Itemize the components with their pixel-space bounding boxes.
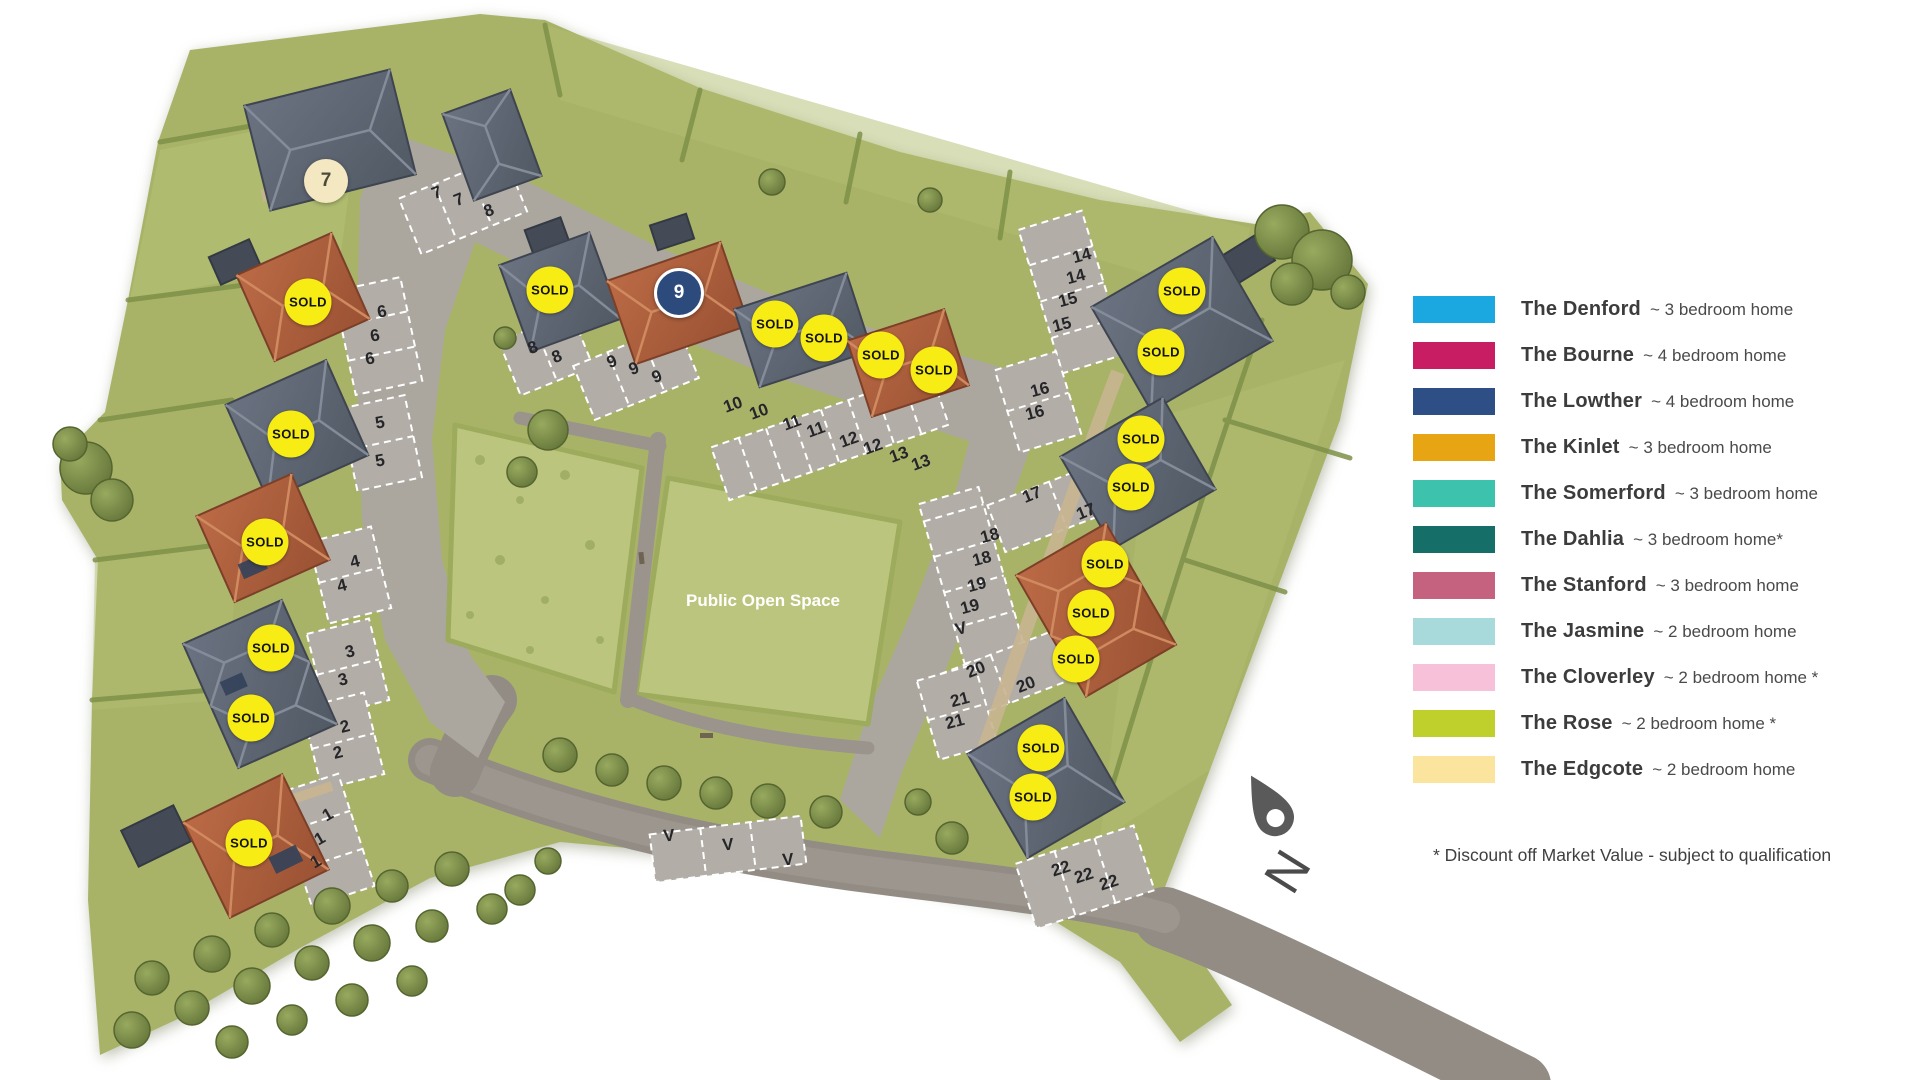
plot-bay-number: 20 [1013,672,1038,698]
plot-bay-number: 22 [1072,864,1096,889]
plot-bay-number: 4 [348,551,362,573]
sold-badge[interactable]: SOLD [1082,541,1129,588]
plot-bay-number: 10 [721,392,746,417]
plot-bay-number: 13 [887,442,912,467]
plot-bay-number: 22 [1097,871,1121,896]
plot-bay-number: V [662,826,675,847]
plot-bay-number: 21 [943,710,966,734]
legend: The Denford~ 3 bedroom homeThe Bourne~ 4… [1413,296,1818,802]
legend-house-desc: ~ 3 bedroom home [1656,576,1799,595]
plot-bay-number: 15 [1056,288,1079,312]
sold-badge[interactable]: SOLD [1108,464,1155,511]
sold-badge[interactable]: SOLD [228,695,275,742]
plot-bay-number: 17 [1019,482,1044,508]
legend-house-name: The Bourne [1521,344,1634,366]
sold-badge[interactable]: SOLD [1018,725,1065,772]
sold-badge[interactable]: SOLD [242,519,289,566]
legend-house-desc: ~ 3 bedroom home [1675,484,1818,503]
legend-house-name: The Kinlet [1521,436,1620,458]
legend-swatch [1413,434,1495,461]
plot-bay-number: V [721,835,734,856]
plot-bay-number: 1 [311,828,329,850]
plot-bay-number: 20 [963,657,988,683]
plot-marker-7[interactable]: 7 [304,159,348,203]
plot-bay-number: 10 [747,399,772,424]
plot-bay-number: 21 [948,688,971,712]
plot-bay-number: 1 [319,804,337,826]
plot-bay-number: 8 [549,346,565,368]
legend-house-desc: ~ 2 bedroom home [1653,622,1796,641]
plot-bay-number: 2 [331,742,345,764]
sold-badge[interactable]: SOLD [268,411,315,458]
public-open-space-label: Public Open Space [678,590,848,612]
plot-bay-number: 3 [336,669,350,691]
legend-house-desc: ~ 3 bedroom home [1650,300,1793,319]
plot-bay-number: 7 [429,182,445,204]
legend-house-name: The Rose [1521,712,1613,734]
plot-bay-number: 3 [343,641,357,663]
legend-row: The Bourne~ 4 bedroom home [1413,342,1818,369]
sold-badge[interactable]: SOLD [527,267,574,314]
sold-badge[interactable]: SOLD [1138,329,1185,376]
legend-swatch [1413,618,1495,645]
site-plan-page: Public Open Space N SOLDSOLDSOLDSOLDSOLD… [0,0,1920,1080]
sold-badge[interactable]: SOLD [1118,416,1165,463]
legend-row: The Kinlet~ 3 bedroom home [1413,434,1818,461]
sold-badge[interactable]: SOLD [911,347,958,394]
sold-badge[interactable]: SOLD [1068,590,1115,637]
legend-house-name: The Jasmine [1521,620,1644,642]
legend-row: The Somerford~ 3 bedroom home [1413,480,1818,507]
legend-swatch [1413,388,1495,415]
plot-bay-number: 4 [335,575,349,597]
legend-row: The Edgcote~ 2 bedroom home [1413,756,1818,783]
plot-bay-number: 9 [604,351,620,373]
legend-house-name: The Somerford [1521,482,1666,504]
plot-bay-number: 1 [307,851,325,873]
legend-row: The Stanford~ 3 bedroom home [1413,572,1818,599]
plot-bay-number: 6 [376,301,389,322]
sold-badge[interactable]: SOLD [248,625,295,672]
legend-house-desc: ~ 2 bedroom home * [1664,668,1819,687]
legend-house-name: The Lowther [1521,390,1642,412]
legend-row: The Jasmine~ 2 bedroom home [1413,618,1818,645]
plot-bay-number: 17 [1073,499,1098,525]
plot-bay-number: 16 [1028,378,1051,402]
legend-swatch [1413,342,1495,369]
legend-house-name: The Stanford [1521,574,1647,596]
sold-badge[interactable]: SOLD [1010,774,1057,821]
legend-house-desc: ~ 4 bedroom home [1651,392,1794,411]
sold-badge[interactable]: SOLD [1053,636,1100,683]
plot-bay-number: 12 [837,427,862,452]
sold-badge[interactable]: SOLD [1159,268,1206,315]
legend-swatch [1413,710,1495,737]
legend-house-desc: ~ 4 bedroom home [1643,346,1786,365]
legend-swatch [1413,480,1495,507]
plot-bay-number: 7 [451,189,467,211]
plot-bay-number: 8 [525,337,541,359]
legend-row: The Denford~ 3 bedroom home [1413,296,1818,323]
plot-bay-number: 18 [978,524,1001,548]
plot-bay-number: 9 [649,366,665,388]
plot-bay-number: 5 [374,450,387,471]
legend-house-name: The Dahlia [1521,528,1624,550]
legend-swatch [1413,664,1495,691]
legend-swatch [1413,756,1495,783]
plot-bay-number: 2 [338,716,352,738]
legend-house-name: The Cloverley [1521,666,1655,688]
legend-swatch [1413,572,1495,599]
sold-badge[interactable]: SOLD [226,820,273,867]
legend-house-name: The Denford [1521,298,1641,320]
sold-badge[interactable]: SOLD [801,315,848,362]
legend-house-desc: ~ 3 bedroom home* [1633,530,1783,549]
plot-bay-number: 22 [1049,857,1073,882]
legend-house-name: The Edgcote [1521,758,1643,780]
plot-bay-number: 19 [958,595,981,619]
plot-bay-number: 6 [364,348,377,369]
plot-bay-number: V [953,618,969,640]
legend-swatch [1413,526,1495,553]
plot-bay-number: V [781,850,794,871]
plot-bay-number: 12 [861,434,886,459]
plot-bay-number: 11 [780,411,804,436]
legend-row: The Dahlia~ 3 bedroom home* [1413,526,1818,553]
sold-badge[interactable]: SOLD [858,332,905,379]
legend-row: The Rose~ 2 bedroom home * [1413,710,1818,737]
north-label: N [1253,840,1324,904]
plot-bay-number: 6 [369,325,382,346]
plot-bay-number: 5 [374,412,387,433]
plot-bay-number: 11 [804,418,828,443]
plot-bay-number: 15 [1050,313,1073,337]
legend-row: The Lowther~ 4 bedroom home [1413,388,1818,415]
plot-bay-number: 8 [481,200,497,222]
legend-disclaimer: * Discount off Market Value - subject to… [1433,845,1831,866]
sold-badge[interactable]: SOLD [285,279,332,326]
legend-house-desc: ~ 3 bedroom home [1629,438,1772,457]
legend-house-desc: ~ 2 bedroom home * [1622,714,1777,733]
plot-bay-number: 13 [909,450,934,475]
plot-bay-number: 9 [626,358,642,380]
plot-marker-9[interactable]: 9 [654,268,704,318]
plot-bay-number: 14 [1064,265,1087,289]
legend-house-desc: ~ 2 bedroom home [1652,760,1795,779]
sold-badge[interactable]: SOLD [752,301,799,348]
plot-bay-number: 18 [970,547,993,571]
legend-swatch [1413,296,1495,323]
plot-bay-number: 19 [965,573,988,597]
plot-bay-number: 16 [1023,401,1046,425]
legend-row: The Cloverley~ 2 bedroom home * [1413,664,1818,691]
